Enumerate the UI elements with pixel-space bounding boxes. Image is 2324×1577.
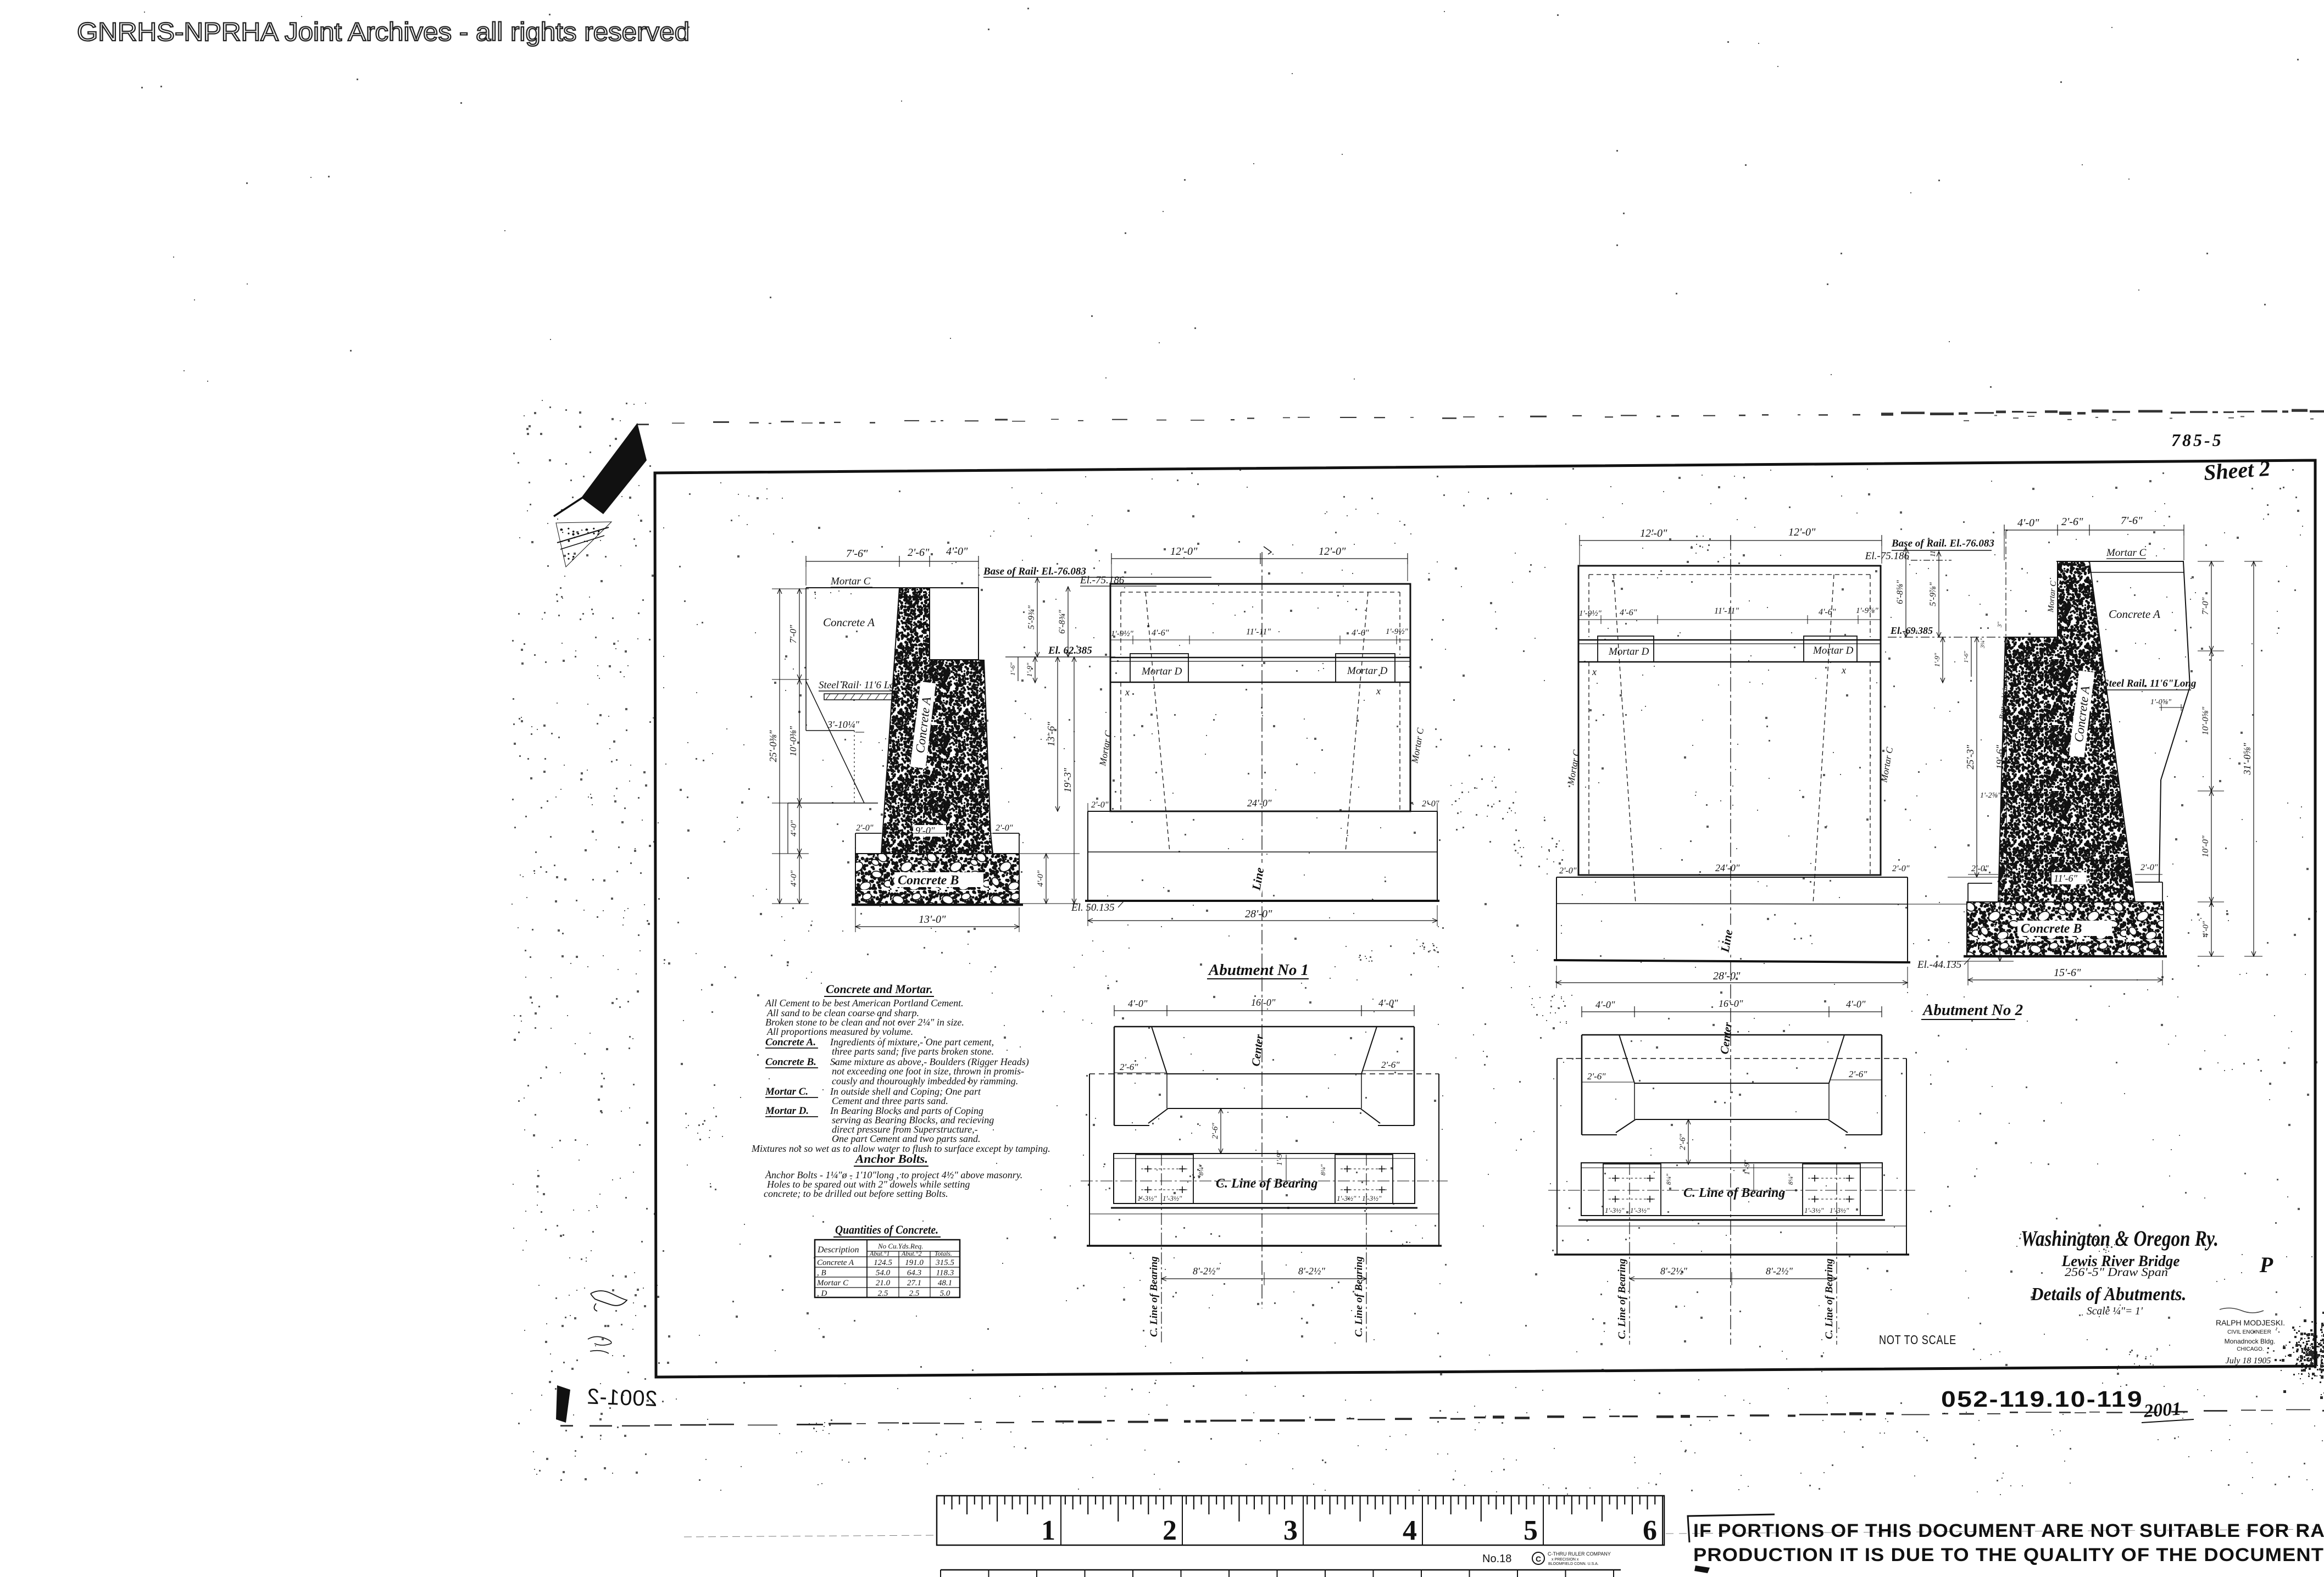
svg-text:PRODUCTION IT IS DUE TO THE QU: PRODUCTION IT IS DUE TO THE QUALITY OF T… bbox=[1693, 1545, 2324, 1565]
svg-text:315.5: 315.5 bbox=[935, 1258, 954, 1267]
svg-text:Line: Line bbox=[1249, 866, 1266, 891]
svg-text:13'-6": 13'-6" bbox=[1046, 722, 1057, 746]
svg-text:Mortar C: Mortar C bbox=[2106, 547, 2147, 559]
svg-text:25'-3": 25'-3" bbox=[1965, 745, 1976, 770]
svg-text:3'-10¼": 3'-10¼" bbox=[827, 719, 859, 730]
svg-text:Mortar C: Mortar C bbox=[1097, 729, 1114, 767]
svg-text:124.5: 124.5 bbox=[874, 1258, 892, 1267]
svg-text:785-5: 785-5 bbox=[2171, 430, 2223, 450]
svg-text:El. 62.385: El. 62.385 bbox=[1048, 645, 1092, 656]
svg-text:54.0: 54.0 bbox=[876, 1269, 891, 1278]
svg-text:6'-8⅝": 6'-8⅝" bbox=[1895, 580, 1905, 604]
svg-text:4'-0": 4'-0" bbox=[1378, 998, 1398, 1008]
svg-text:Mortar C.: Mortar C. bbox=[765, 1086, 808, 1097]
svg-text:12'-0": 12'-0" bbox=[1170, 545, 1198, 558]
svg-text:Concrete A: Concrete A bbox=[817, 1258, 854, 1267]
svg-text:Details of Abutments.: Details of Abutments. bbox=[2031, 1284, 2187, 1305]
svg-text:10'-0⅝": 10'-0⅝" bbox=[2201, 706, 2210, 735]
svg-text:1'-9⅞": 1'-9⅞" bbox=[1856, 606, 1878, 615]
svg-text:Mortar C: Mortar C bbox=[1409, 727, 1426, 765]
svg-text:El.-75.186: El.-75.186 bbox=[1865, 550, 1910, 562]
svg-text:1'-9": 1'-9" bbox=[1276, 1150, 1284, 1166]
svg-text:Scale ¼"= 1': Scale ¼"= 1' bbox=[2087, 1305, 2143, 1317]
svg-text:2'-6": 2'-6" bbox=[1849, 1069, 1867, 1079]
svg-text:Monadnock Bldg.: Monadnock Bldg. bbox=[2225, 1338, 2276, 1345]
svg-text:1'-3½": 1'-3½" bbox=[1605, 1206, 1625, 1214]
svg-text:three parts sand; five parts b: three parts sand; five parts broken ston… bbox=[832, 1046, 994, 1057]
svg-text:El.-44.135: El.-44.135 bbox=[1917, 959, 1961, 971]
svg-text:1'-3½": 1'-3½" bbox=[1804, 1206, 1824, 1214]
svg-text:Concrete A: Concrete A bbox=[2109, 608, 2160, 621]
svg-text:19'-3": 19'-3" bbox=[1062, 768, 1073, 793]
svg-text:64.3: 64.3 bbox=[907, 1269, 921, 1278]
svg-text:8'-2½": 8'-2½" bbox=[1660, 1266, 1687, 1277]
svg-text:15'-6": 15'-6" bbox=[2054, 967, 2081, 979]
svg-text:Line: Line bbox=[1717, 928, 1735, 954]
svg-text:2'-6": 2'-6" bbox=[1211, 1123, 1220, 1139]
svg-text:Concrete B: Concrete B bbox=[898, 873, 959, 888]
svg-text:1'-9½": 1'-9½" bbox=[1579, 609, 1602, 618]
svg-text:IF PORTIONS OF THIS DOCUMENT A: IF PORTIONS OF THIS DOCUMENT ARE NOT SUI… bbox=[1693, 1520, 2324, 1541]
svg-text:1'-9½": 1'-9½" bbox=[1386, 627, 1408, 636]
svg-text:Steel Rail· 11'6 Lg: Steel Rail· 11'6 Lg bbox=[819, 679, 895, 691]
svg-text:2'-6": 2'-6" bbox=[1381, 1060, 1400, 1070]
svg-text:Mortar D: Mortar D bbox=[1347, 665, 1388, 677]
svg-text:1'-2⅝": 1'-2⅝" bbox=[1980, 792, 2001, 800]
svg-text:cously and thouroughly imbedde: cously and thouroughly imbedded by rammi… bbox=[832, 1076, 1018, 1086]
svg-text:Mortar D: Mortar D bbox=[1608, 646, 1649, 657]
svg-text:2.5: 2.5 bbox=[878, 1289, 888, 1298]
svg-text:El.-69.385: El.-69.385 bbox=[1890, 625, 1933, 636]
svg-text:concrete; to be drilled out be: concrete; to be drilled out before setti… bbox=[764, 1188, 948, 1199]
svg-text:8¼": 8¼" bbox=[1787, 1173, 1794, 1185]
svg-text:7'-6": 7'-6" bbox=[2121, 515, 2143, 527]
svg-text:C. Line of Bearing: C. Line of Bearing bbox=[1823, 1258, 1835, 1339]
svg-text:11'-11": 11'-11" bbox=[1714, 606, 1739, 616]
svg-text:48.1: 48.1 bbox=[938, 1279, 952, 1288]
svg-text:13'-0": 13'-0" bbox=[919, 913, 946, 926]
svg-text:4: 4 bbox=[1403, 1515, 1417, 1546]
svg-text:5'-9⅞": 5'-9⅞" bbox=[1928, 582, 1938, 606]
svg-text:4'-0": 4'-0" bbox=[1595, 999, 1615, 1010]
svg-text:4'-0": 4'-0" bbox=[1036, 870, 1045, 887]
svg-text:Mortar C: Mortar C bbox=[816, 1279, 849, 1288]
svg-text:7'-6": 7'-6" bbox=[846, 548, 868, 560]
svg-text:2'-0": 2'-0" bbox=[996, 823, 1013, 833]
svg-text:8¼": 8¼" bbox=[1197, 1164, 1205, 1175]
svg-text:1'-3½": 1'-3½" bbox=[1830, 1206, 1849, 1214]
svg-text:12'-0": 12'-0" bbox=[1319, 545, 1346, 558]
svg-text:Concrete A: Concrete A bbox=[823, 616, 875, 629]
svg-text:Abutment No 1: Abutment No 1 bbox=[1208, 961, 1309, 979]
svg-text:6'-8¾": 6'-8¾" bbox=[1058, 610, 1067, 634]
svg-text:July 18 1905: July 18 1905 bbox=[2226, 1356, 2271, 1366]
svg-text:4'-0": 4'-0" bbox=[790, 870, 798, 887]
svg-text:1'-9½": 1'-9½" bbox=[1111, 629, 1133, 638]
svg-text:CIVIL ENGINEER: CIVIL ENGINEER bbox=[2227, 1329, 2271, 1335]
svg-text:2'-6": 2'-6" bbox=[1587, 1071, 1606, 1082]
svg-text:1'-9": 1'-9" bbox=[1025, 662, 1033, 677]
svg-text:16'-0": 16'-0" bbox=[1719, 998, 1743, 1009]
svg-text:11'-6": 11'-6" bbox=[2054, 873, 2078, 884]
svg-text:11: 11 bbox=[1928, 550, 1937, 557]
svg-text:118.3: 118.3 bbox=[936, 1269, 954, 1278]
svg-text:24'-0": 24'-0" bbox=[1715, 862, 1740, 873]
svg-text:8¼": 8¼" bbox=[1319, 1164, 1327, 1175]
svg-text:6: 6 bbox=[1643, 1515, 1657, 1546]
svg-text:1'-3½": 1'-3½" bbox=[1137, 1194, 1157, 1202]
svg-text:Concrete A.: Concrete A. bbox=[765, 1037, 816, 1048]
svg-text:9'-0": 9'-0" bbox=[915, 825, 935, 836]
svg-text:4'-0": 4'-0" bbox=[1128, 998, 1148, 1009]
svg-text:2001-2: 2001-2 bbox=[587, 1385, 658, 1411]
svg-text:1'-3½": 1'-3½" bbox=[1362, 1194, 1382, 1202]
svg-text:C. Line of Bearing: C. Line of Bearing bbox=[1148, 1256, 1160, 1337]
svg-text:2'-0": 2'-0" bbox=[1091, 800, 1109, 810]
svg-text:2'-0": 2'-0" bbox=[2140, 863, 2158, 872]
svg-text:All proportions measured by vo: All proportions measured by volume. bbox=[766, 1026, 913, 1037]
svg-text:Base of Rail. El.-76.083: Base of Rail. El.-76.083 bbox=[1891, 538, 1994, 549]
svg-text:Center: Center bbox=[1717, 1021, 1734, 1055]
svg-text:2'-6": 2'-6" bbox=[2061, 516, 2083, 528]
svg-text:Sheet 2: Sheet 2 bbox=[2203, 456, 2271, 485]
svg-text:1'-9": 1'-9" bbox=[1743, 1160, 1752, 1175]
svg-text:Mortar C: Mortar C bbox=[2047, 580, 2058, 613]
svg-text:28'-0": 28'-0" bbox=[1245, 908, 1272, 920]
svg-text:1'-3½": 1'-3½" bbox=[1337, 1194, 1356, 1202]
svg-text:Concrete and Mortar.: Concrete and Mortar. bbox=[826, 982, 933, 996]
svg-text:3¼": 3¼" bbox=[1980, 638, 1986, 649]
svg-text:5: 5 bbox=[1524, 1515, 1538, 1546]
svg-text:12'-0": 12'-0" bbox=[1788, 526, 1816, 538]
svg-text:Cement and three parts sand.: Cement and three parts sand. bbox=[832, 1095, 948, 1106]
svg-text:4'-6": 4'-6" bbox=[1152, 628, 1169, 638]
svg-text:4'-0": 4'-0" bbox=[2201, 921, 2210, 937]
svg-text:C. Line of Bearing: C. Line of Bearing bbox=[1683, 1186, 1785, 1200]
svg-text:2'-0": 2'-0" bbox=[1892, 864, 1910, 873]
svg-text:Steel Rail. 11'6"Long: Steel Rail. 11'6"Long bbox=[2103, 678, 2196, 689]
svg-text:x PRECISION x: x PRECISION x bbox=[1552, 1558, 1579, 1562]
svg-text:5.0: 5.0 bbox=[940, 1289, 950, 1298]
svg-text:24'-0": 24'-0" bbox=[1247, 798, 1272, 809]
svg-text:2'-0": 2'-0" bbox=[1971, 864, 1989, 873]
svg-text:256'-5" Draw Span: 256'-5" Draw Span bbox=[2065, 1265, 2168, 1279]
svg-text:C: C bbox=[1536, 1554, 1541, 1563]
svg-text:Abut.°1: Abut.°1 bbox=[869, 1250, 889, 1257]
svg-text:Mortar C: Mortar C bbox=[830, 576, 871, 587]
svg-text:Anchor Bolts.: Anchor Bolts. bbox=[854, 1152, 928, 1166]
svg-text:Concrete B: Concrete B bbox=[2021, 922, 2082, 936]
svg-text:1'-9": 1'-9" bbox=[1933, 653, 1941, 667]
svg-text:1'-0⅝": 1'-0⅝" bbox=[2150, 698, 2171, 706]
svg-text:27.1: 27.1 bbox=[907, 1279, 921, 1288]
svg-text:28'-0": 28'-0" bbox=[1713, 970, 1741, 982]
svg-text:4'-6": 4'-6" bbox=[1352, 628, 1369, 638]
svg-text:2001: 2001 bbox=[2143, 1398, 2182, 1422]
svg-text:Concrete B.: Concrete B. bbox=[765, 1056, 816, 1068]
svg-text:x: x bbox=[1841, 665, 1846, 676]
svg-text:Quantities of Concrete.: Quantities of Concrete. bbox=[835, 1223, 938, 1236]
svg-text:All Cement to be best America: All Cement to be best American Portland … bbox=[765, 998, 964, 1008]
svg-text:No.18: No.18 bbox=[1482, 1553, 1511, 1565]
svg-text:4'-6": 4'-6" bbox=[1620, 608, 1637, 617]
svg-text:1'-6": 1'-6" bbox=[1009, 662, 1016, 676]
svg-text:4'-0": 4'-0" bbox=[2017, 517, 2039, 529]
svg-text:16'-0": 16'-0" bbox=[1251, 997, 1276, 1008]
svg-text:7'-0": 7'-0" bbox=[788, 625, 798, 643]
svg-text:Base of Rail· El.-76.083: Base of Rail· El.-76.083 bbox=[983, 566, 1086, 577]
svg-text:1'-3½": 1'-3½" bbox=[1630, 1206, 1650, 1214]
svg-text:2'-0": 2'-0" bbox=[856, 823, 874, 833]
svg-text:31'-0⅝": 31'-0⅝" bbox=[2242, 743, 2253, 775]
svg-text:2'-6": 2'-6" bbox=[908, 547, 930, 559]
svg-text:4'-0": 4'-0" bbox=[1846, 999, 1866, 1010]
svg-text:C. Line of Bearing: C. Line of Bearing bbox=[1216, 1177, 1317, 1191]
svg-text:, B: , B bbox=[817, 1269, 826, 1278]
svg-text:CHICAGO.: CHICAGO. bbox=[2237, 1346, 2264, 1352]
svg-text:C-THRU RULER COMPANY: C-THRU RULER COMPANY bbox=[1548, 1551, 1611, 1557]
svg-text:C. Line of Bearing: C. Line of Bearing bbox=[1616, 1258, 1628, 1339]
svg-text:2.5: 2.5 bbox=[909, 1289, 920, 1298]
svg-text:8'-2½": 8'-2½" bbox=[1193, 1266, 1220, 1277]
svg-text:not exceeding one foot in size: not exceeding one foot in size, thrown i… bbox=[832, 1066, 1024, 1077]
svg-text:2: 2 bbox=[1163, 1515, 1177, 1546]
svg-text:NOT TO SCALE: NOT TO SCALE bbox=[1879, 1333, 1956, 1347]
svg-text:2'-6": 2'-6" bbox=[1120, 1062, 1138, 1072]
svg-text:El. 50.135: El. 50.135 bbox=[1071, 902, 1115, 913]
svg-text:No Cu.Yds.Req.: No Cu.Yds.Req. bbox=[877, 1242, 923, 1250]
svg-text:x: x bbox=[1376, 686, 1381, 696]
svg-text:1: 1 bbox=[1041, 1515, 1055, 1546]
svg-text:Mortar D: Mortar D bbox=[1813, 645, 1854, 656]
svg-text:191.0: 191.0 bbox=[905, 1258, 924, 1267]
svg-text:8'-2½": 8'-2½" bbox=[1766, 1266, 1793, 1277]
svg-text:One part Cement and two parts: One part Cement and two parts sand. bbox=[832, 1133, 981, 1144]
svg-text:x: x bbox=[1125, 687, 1130, 698]
svg-text:7'-0": 7'-0" bbox=[2201, 597, 2210, 615]
svg-text:11'-11": 11'-11" bbox=[1246, 627, 1271, 637]
svg-text:Description: Description bbox=[817, 1245, 859, 1255]
svg-text:4'-0": 4'-0" bbox=[946, 545, 968, 558]
svg-text:P: P bbox=[2259, 1252, 2273, 1277]
svg-text:1'-6": 1'-6" bbox=[1963, 651, 1970, 663]
svg-text:Totals.: Totals. bbox=[935, 1250, 952, 1257]
svg-text:12'-0": 12'-0" bbox=[1640, 527, 1667, 539]
svg-text:3: 3 bbox=[1283, 1515, 1298, 1546]
svg-text:x: x bbox=[1592, 666, 1597, 677]
svg-text:052-119.10-119: 052-119.10-119 bbox=[1941, 1386, 2143, 1412]
svg-text:3": 3" bbox=[1997, 622, 2003, 628]
svg-text:4'-6": 4'-6" bbox=[1819, 608, 1836, 617]
svg-text:2'-0": 2'-0" bbox=[1422, 799, 1439, 809]
svg-text:5'-9¾": 5'-9¾" bbox=[1027, 605, 1036, 629]
svg-text:Abut.°2: Abut.°2 bbox=[901, 1250, 921, 1257]
svg-text:, D: , D bbox=[817, 1289, 827, 1298]
svg-text:1'-3½": 1'-3½" bbox=[1163, 1194, 1182, 1202]
svg-text:RALPH MODJESKI.: RALPH MODJESKI. bbox=[2216, 1318, 2285, 1327]
svg-text:Washington & Oregon Ry.: Washington & Oregon Ry. bbox=[2021, 1226, 2219, 1251]
svg-text:10'-0": 10'-0" bbox=[2201, 835, 2210, 857]
svg-text:C. Line of Bearing: C. Line of Bearing bbox=[1353, 1256, 1365, 1337]
svg-text:21.0: 21.0 bbox=[876, 1279, 891, 1288]
svg-text:2'-0": 2'-0" bbox=[1559, 866, 1577, 876]
svg-text:2'-6": 2'-6" bbox=[1678, 1134, 1687, 1150]
svg-text:Abutment No 2: Abutment No 2 bbox=[1922, 1001, 2023, 1019]
svg-text:8¼": 8¼" bbox=[1665, 1173, 1672, 1185]
svg-text:4'-0": 4'-0" bbox=[790, 820, 798, 837]
svg-text:8'-2½": 8'-2½" bbox=[1298, 1266, 1325, 1277]
svg-text:25'-0⅜": 25'-0⅜" bbox=[768, 730, 779, 762]
svg-text:Mortar D: Mortar D bbox=[1141, 666, 1182, 677]
svg-text:GNRHS-NPRHA Joint Archives - a: GNRHS-NPRHA Joint Archives - all rights … bbox=[77, 17, 690, 46]
svg-text:BLOOMFIELD CONN. U.S.A.: BLOOMFIELD CONN. U.S.A. bbox=[1548, 1562, 1599, 1566]
svg-text:Center: Center bbox=[1249, 1033, 1266, 1067]
svg-text:Mortar C: Mortar C bbox=[1565, 749, 1582, 787]
svg-text:Mortar D.: Mortar D. bbox=[765, 1105, 809, 1117]
svg-text:10'-0⅜": 10'-0⅜" bbox=[788, 726, 798, 756]
